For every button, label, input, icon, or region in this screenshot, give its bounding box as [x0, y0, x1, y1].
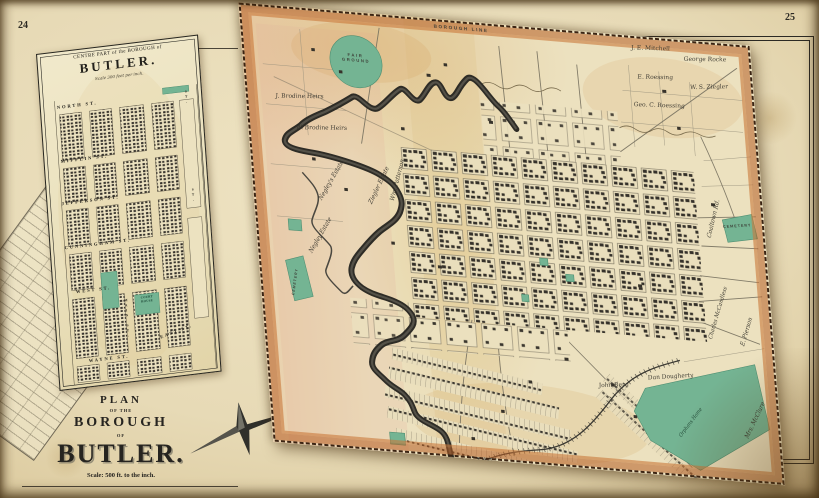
- map-label-ws-ziegler: W. S. Ziegler: [690, 83, 729, 91]
- map-label-e-roessing: E. Roessing: [637, 74, 673, 82]
- map-label-w-brodine-heirs: W. Brodine Heirs: [295, 124, 347, 132]
- map-label-fair-ground: FAIR GROUND: [341, 52, 370, 65]
- map-label-george-rocke: George Rocke: [683, 56, 727, 64]
- left-plate-frame-bottom: [22, 486, 238, 487]
- atlas-page: 24 25 CENTRE PART of the BOROUGH of BUTL…: [0, 0, 819, 498]
- main-borough-map: BOROUGH LINE FAIR GROUND J. Brodine Heir…: [238, 2, 785, 486]
- inset-map-centre-part: CENTRE PART of the BOROUGH of BUTLER. Sc…: [36, 35, 222, 391]
- title-scale: Scale: 500 ft. to the inch.: [18, 472, 224, 479]
- page-number-left: 24: [18, 20, 28, 31]
- map-label-je-mitchell: J. E. Mitchell: [631, 44, 671, 52]
- map-label-john-berg: John Berg: [598, 381, 629, 389]
- page-number-right: 25: [785, 12, 795, 23]
- main-map-drawing: [238, 2, 785, 486]
- map-label-j-brodine-he irs: J. Brodine Heirs: [275, 93, 324, 101]
